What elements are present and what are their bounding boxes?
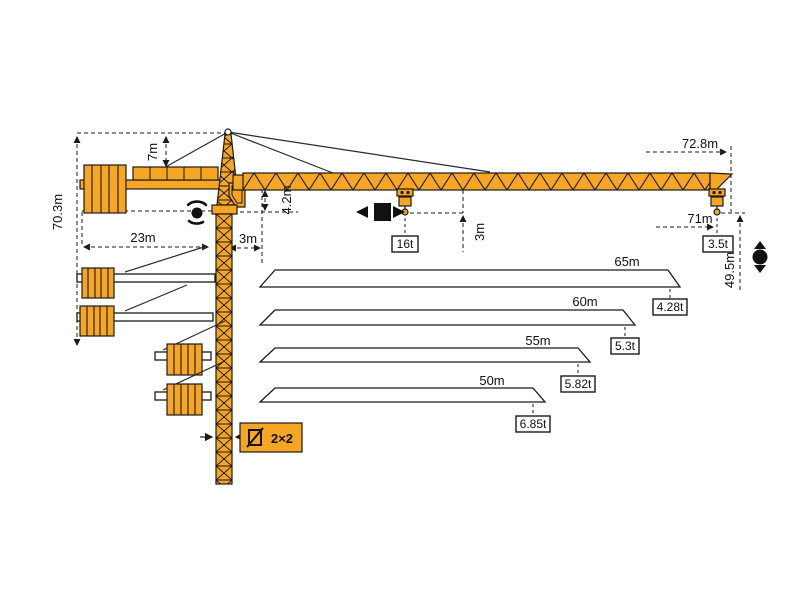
tower-head-height-label: 7m — [145, 143, 160, 161]
mast-cross-section-icon — [247, 428, 263, 447]
slewing-turntable — [212, 205, 237, 214]
jib-length-label-65m: 65m — [614, 254, 639, 269]
svg-text:5.3t: 5.3t — [615, 339, 636, 353]
trolley-hook-offset-label: 3m — [472, 223, 487, 241]
jib-tie-line-long — [228, 132, 490, 172]
jib-section-height-label: 4.2m — [279, 186, 294, 215]
counterweight-stack — [84, 165, 126, 213]
counter-jib-length-label: 23m — [130, 230, 155, 245]
jib-profile-50m — [260, 388, 545, 402]
apex-pin — [225, 129, 231, 135]
svg-text:6.85t: 6.85t — [520, 417, 547, 431]
svg-text:5.82t: 5.82t — [565, 377, 592, 391]
counterweight-variant-1 — [77, 246, 215, 298]
jib-lattice — [243, 173, 710, 190]
jib-length-label-55m: 55m — [525, 333, 550, 348]
jib-length-label-50m: 50m — [479, 373, 504, 388]
jib-tip-radius-label: 72.8m — [682, 136, 718, 151]
hoist-up-down-icon — [753, 241, 768, 273]
mast-section-callout: 2×2 — [200, 423, 302, 452]
crane-diagram-page: 65m 60m 55m 50m 4.28t 5.3t 5.82t 6.85t — [0, 0, 800, 600]
jib-length-label-60m: 60m — [572, 294, 597, 309]
counterweight-variant-3 — [155, 321, 225, 375]
max-hook-radius-label: 71m — [687, 211, 712, 226]
jib-profile-65m — [260, 270, 680, 287]
capacity-badge-55m: 5.82t — [561, 376, 595, 392]
jib-tie-line-short — [228, 132, 338, 175]
jib-profile-60m — [260, 310, 635, 325]
jib-length-chart: 65m 60m 55m 50m 4.28t 5.3t 5.82t 6.85t — [260, 254, 687, 432]
total-height-label: 70.3m — [50, 194, 65, 230]
tip-load-badge: 3.5t — [703, 236, 733, 252]
max-load-badge: 16t — [392, 236, 418, 252]
trolley-travel-icon — [356, 203, 405, 221]
svg-text:4.28t: 4.28t — [657, 300, 684, 314]
slewing-rotation-icon — [188, 202, 206, 224]
counter-jib-platform — [133, 167, 218, 180]
hook-height-label: 49.5m — [722, 252, 737, 288]
tower-mast — [216, 214, 232, 484]
jib-profile-55m — [260, 348, 590, 362]
counter-jib-tie-line — [162, 132, 228, 169]
jib-tip — [710, 173, 732, 190]
hook-tip — [714, 209, 720, 215]
crane-structure — [80, 129, 732, 484]
min-hook-radius-label: 3m — [239, 231, 257, 246]
svg-text:16t: 16t — [397, 237, 414, 251]
mast-section-label: 2×2 — [271, 431, 293, 446]
capacity-badge-50m: 6.85t — [516, 416, 550, 432]
capacity-badge-65m: 4.28t — [653, 299, 687, 315]
counterweight-variants — [77, 246, 225, 415]
crane-diagram: 65m 60m 55m 50m 4.28t 5.3t 5.82t 6.85t — [0, 0, 800, 600]
capacity-badge-60m: 5.3t — [611, 338, 639, 354]
svg-text:3.5t: 3.5t — [708, 237, 729, 251]
